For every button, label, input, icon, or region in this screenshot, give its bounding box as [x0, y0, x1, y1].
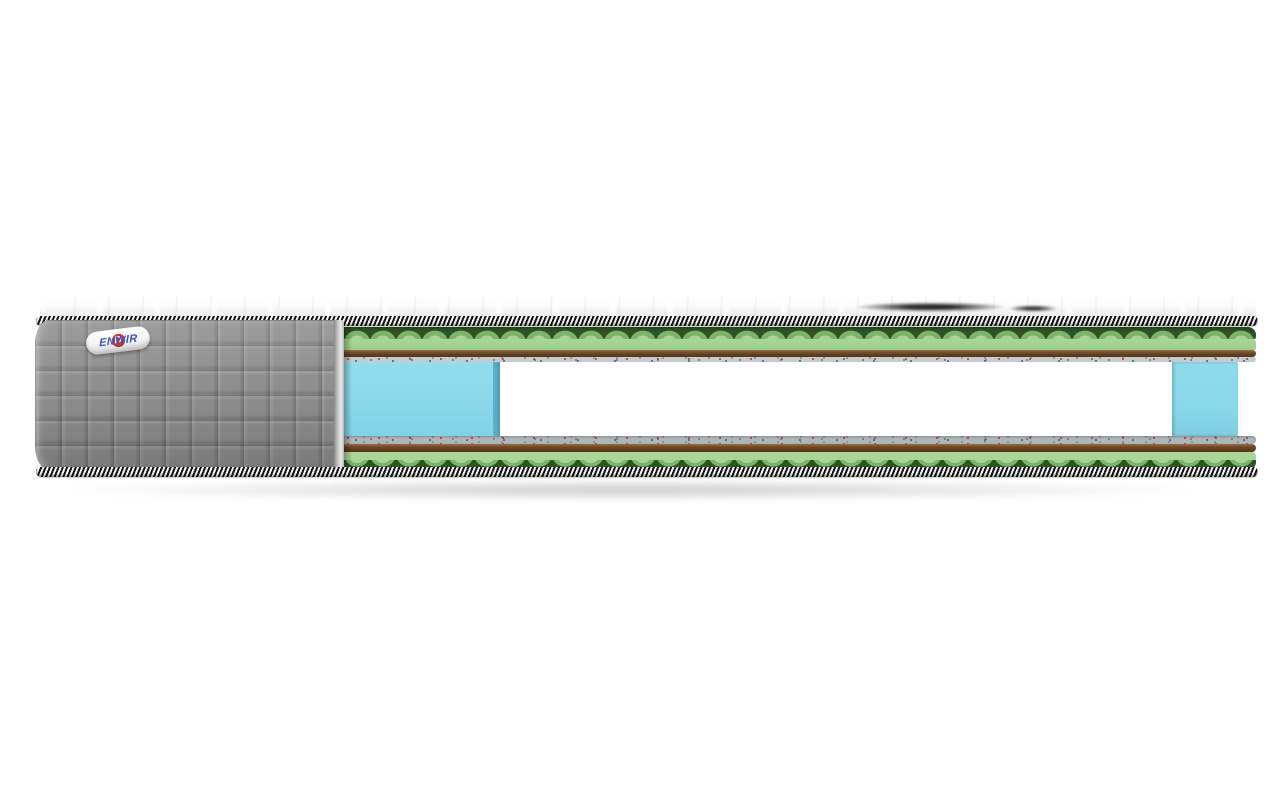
side-foam-block-left-edge	[493, 362, 500, 436]
mattress-product-photo: D ENWIR	[0, 0, 1280, 800]
top-foam-layer	[344, 339, 1256, 350]
side-foam-block-right	[1172, 362, 1238, 436]
pocket-springs	[500, 362, 1172, 436]
top-foam-wave-layer	[344, 327, 1256, 339]
brand-name: ENWIR	[99, 332, 138, 349]
side-foam-block-left	[344, 362, 493, 436]
bottom-felt-layer	[344, 436, 1256, 444]
bottom-foam-layer	[344, 452, 1256, 460]
bottom-piping-band	[36, 467, 1258, 477]
drop-shadow	[55, 479, 1205, 501]
cover-cut-edge	[334, 320, 344, 470]
top-label-patch-small	[1008, 305, 1058, 312]
top-coir-layer	[344, 350, 1256, 357]
bottom-coir-layer	[344, 444, 1256, 452]
quilted-side-cover	[35, 320, 342, 470]
top-label-patch	[855, 302, 1007, 312]
spring-core	[344, 362, 1256, 436]
cutaway-edge-shadow	[344, 327, 352, 470]
